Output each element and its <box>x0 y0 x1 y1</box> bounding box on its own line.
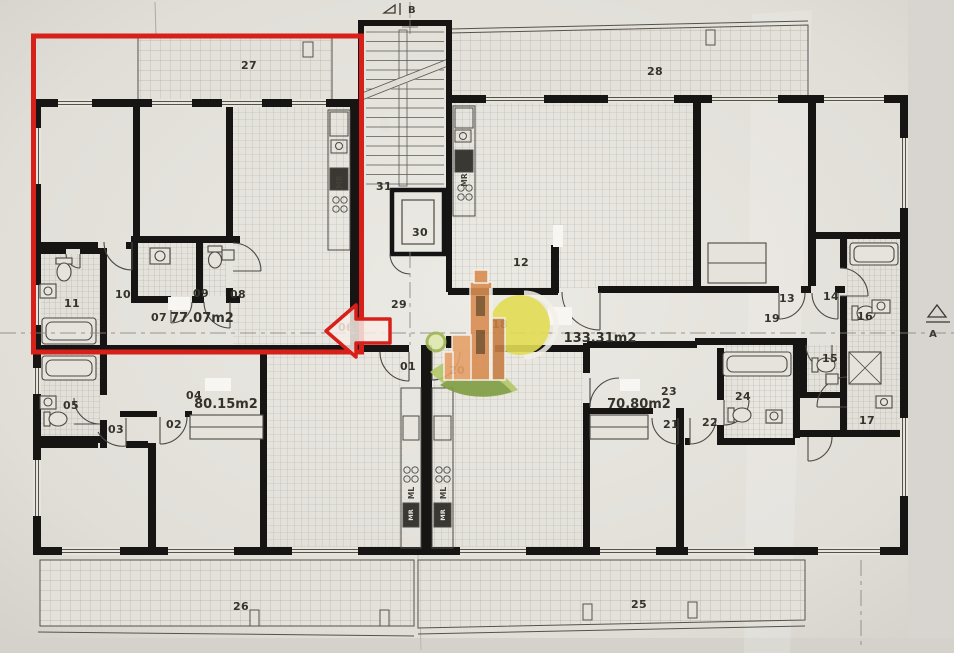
room-label-31: 31 <box>376 180 392 193</box>
sink <box>766 410 782 423</box>
sink <box>876 396 892 408</box>
room-label-02: 02 <box>166 418 182 431</box>
room-label-09: 09 <box>193 287 209 300</box>
kitchen-label-mr-top-left: MR <box>335 175 344 188</box>
sink <box>872 300 890 313</box>
watermark-dot <box>427 333 445 351</box>
kitchen-label-mr-bottom-right: MR <box>439 509 447 520</box>
area-label-top-left: 77.07m2 <box>170 311 234 326</box>
room-label-01: 01 <box>400 360 416 373</box>
room-label-19: 19 <box>764 312 780 325</box>
washing-machine <box>150 248 170 264</box>
sink <box>40 396 56 409</box>
kitchen-label-mr-bottom-left: MR <box>407 509 415 520</box>
closet <box>590 415 648 439</box>
room-label-12: 12 <box>513 256 529 269</box>
room-label-13: 13 <box>779 292 795 305</box>
room-label-10: 10 <box>115 288 131 301</box>
floor-plan-svg: 01 02 03 04 05 06 07 08 09 10 11 12 13 1… <box>0 0 954 653</box>
balcony-27 <box>138 38 332 102</box>
sink <box>826 374 838 384</box>
section-marker-a-label: A <box>929 329 937 340</box>
room-label-30: 30 <box>412 226 428 239</box>
floor-plan-photo: 01 02 03 04 05 06 07 08 09 10 11 12 13 1… <box>0 0 954 653</box>
kitchen-label-mr-top-right: MR <box>460 173 469 186</box>
toilet <box>44 412 67 426</box>
room-label-07: 07 <box>151 311 167 324</box>
room-label-08: 08 <box>230 288 246 301</box>
kitchen-label-ml-bottom-right: ML <box>439 487 448 499</box>
bathtub <box>42 356 96 380</box>
area-label-bottom-right: 70.80m2 <box>607 397 671 412</box>
sink <box>40 284 56 298</box>
toilet <box>56 258 72 281</box>
toilet <box>208 246 222 268</box>
room-label-25: 25 <box>631 598 647 611</box>
room-label-29: 29 <box>391 298 407 311</box>
room-label-21: 21 <box>663 418 679 431</box>
bathtub <box>850 243 898 265</box>
kitchen-label-ml-bottom-left: ML <box>407 487 416 499</box>
bathtub <box>723 352 791 376</box>
section-marker-b-label: B <box>408 5 416 16</box>
area-label-bottom-left: 80.15m2 <box>194 397 258 412</box>
toilet <box>728 408 751 422</box>
room-label-28: 28 <box>647 65 663 78</box>
shower <box>849 352 881 384</box>
room-label-05: 05 <box>63 399 79 412</box>
room-label-03: 03 <box>108 423 124 436</box>
balcony-26 <box>38 560 414 636</box>
sink <box>222 250 234 260</box>
room-label-16: 16 <box>857 310 873 323</box>
closet <box>708 243 766 283</box>
room-label-17: 17 <box>859 414 875 427</box>
bathtub <box>42 318 96 344</box>
room-label-14: 14 <box>823 290 839 303</box>
area-label-top-right: 133.31m2 <box>564 331 637 346</box>
room-label-11: 11 <box>64 297 80 310</box>
room-label-26: 26 <box>233 600 249 613</box>
room-label-24: 24 <box>735 390 751 403</box>
room-label-22: 22 <box>702 416 718 429</box>
closet <box>190 415 263 439</box>
room-label-15: 15 <box>822 352 838 365</box>
room-label-27: 27 <box>241 59 257 72</box>
